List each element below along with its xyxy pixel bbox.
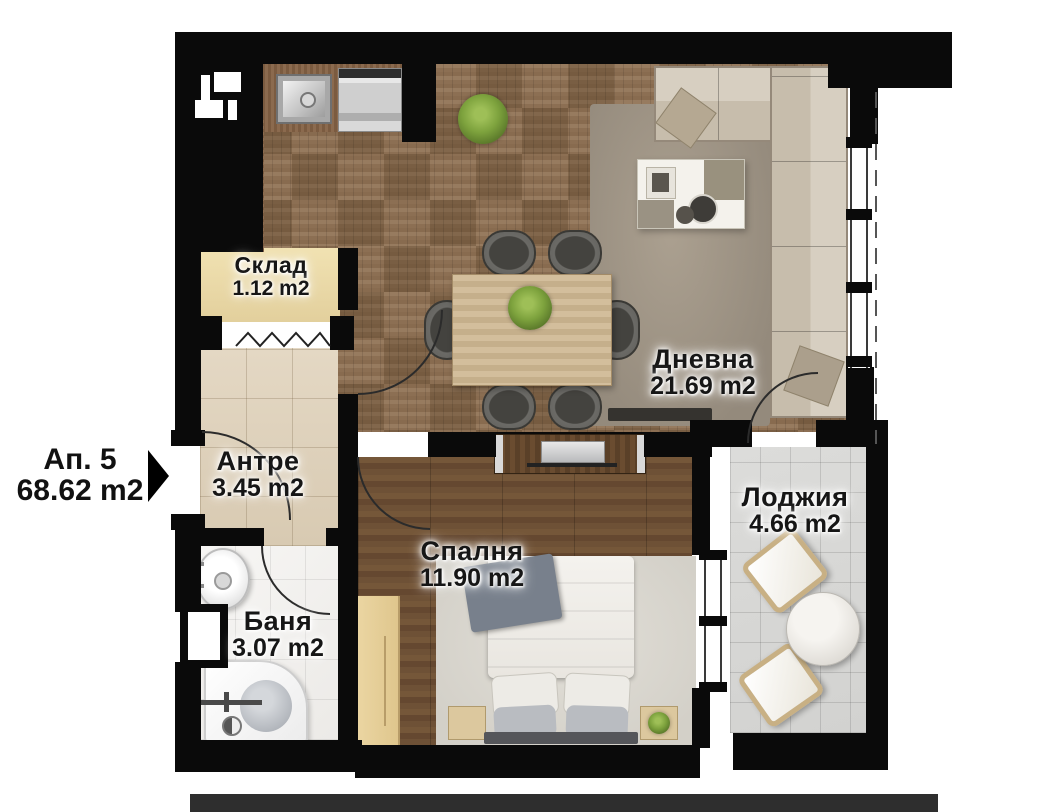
storage-door-jamb-left bbox=[200, 316, 222, 350]
room-area: 21.69 m2 bbox=[618, 373, 788, 399]
room-name: Баня bbox=[208, 608, 348, 635]
window-frame bbox=[850, 142, 852, 368]
wall-left-upper bbox=[175, 252, 201, 444]
plant-icon bbox=[458, 94, 508, 144]
wardrobe bbox=[354, 596, 400, 746]
window-mullion bbox=[846, 209, 872, 220]
vent-shaft bbox=[228, 100, 237, 120]
floor-plan: Склад 1.12 m2 Дневна 21.69 m2 Антре 3.45… bbox=[0, 0, 1056, 812]
wall-top-right-corner bbox=[828, 32, 952, 88]
room-label-bathroom: Баня 3.07 m2 bbox=[208, 608, 348, 661]
wall-shaft-block bbox=[175, 62, 263, 252]
nightstand-plant-icon bbox=[648, 712, 670, 734]
wall-bedroom-top-mid bbox=[428, 432, 496, 457]
wall-bath-top-right bbox=[326, 528, 358, 546]
room-name: Спалня bbox=[392, 538, 552, 565]
apartment-area: 68.62 m2 bbox=[6, 475, 154, 506]
kitchen-sink bbox=[276, 74, 332, 124]
storage-door-jamb-right bbox=[330, 316, 354, 350]
dining-chair bbox=[482, 230, 536, 276]
wall-bottom-bath bbox=[175, 740, 362, 772]
dining-chair bbox=[548, 384, 602, 430]
wall-loggia-top-left bbox=[690, 420, 752, 447]
nightstand-left bbox=[448, 706, 486, 740]
room-name: Антре bbox=[188, 448, 328, 475]
window-mullion bbox=[846, 282, 872, 293]
dishwasher bbox=[338, 68, 402, 132]
wall-right-stub bbox=[850, 88, 878, 144]
shower-drain-icon bbox=[222, 716, 242, 736]
shower bbox=[204, 660, 308, 744]
room-area: 1.12 m2 bbox=[206, 277, 336, 300]
bottom-structure-strip bbox=[190, 794, 938, 812]
shower-pipe-icon bbox=[224, 692, 229, 712]
room-area: 11.90 m2 bbox=[392, 565, 552, 591]
window-mullion bbox=[846, 137, 872, 148]
room-label-loggia: Лоджия 4.66 m2 bbox=[725, 484, 865, 537]
wall-bedroom-right-upper bbox=[692, 457, 710, 555]
photo-frame bbox=[646, 167, 676, 199]
coffee-table bbox=[637, 159, 745, 229]
wall-kitchen-stub bbox=[402, 62, 436, 142]
window-mullion bbox=[699, 616, 727, 626]
room-name: Лоджия bbox=[725, 484, 865, 511]
apartment-label: Ап. 5 68.62 m2 bbox=[6, 444, 154, 506]
decor-tray-icon bbox=[676, 206, 694, 224]
entrance-arrow-icon bbox=[148, 450, 169, 502]
dining-chair bbox=[548, 230, 602, 276]
wall-top bbox=[175, 32, 852, 64]
photo bbox=[652, 173, 669, 192]
wall-under-window bbox=[846, 367, 874, 425]
wall-loggia-right bbox=[866, 420, 888, 736]
wall-bottom-bedroom bbox=[355, 745, 700, 778]
bedroom-tv-unit bbox=[494, 434, 646, 474]
entrance-jamb-top bbox=[171, 430, 205, 446]
wall-hall-bedroom bbox=[338, 394, 358, 745]
wall-hall-upper bbox=[338, 248, 358, 310]
window-mullion bbox=[846, 356, 872, 367]
room-label-hallway: Антре 3.45 m2 bbox=[188, 448, 328, 501]
window-mullion bbox=[699, 682, 727, 692]
loggia-round-table bbox=[786, 592, 860, 666]
wall-bedroom-right-lower bbox=[692, 688, 710, 748]
sink-drain bbox=[300, 92, 316, 108]
wardrobe-door-line bbox=[384, 636, 386, 726]
room-area: 3.45 m2 bbox=[188, 475, 328, 501]
table-plant-icon bbox=[508, 286, 552, 330]
room-label-living: Дневна 21.69 m2 bbox=[618, 346, 788, 399]
wall-bath-top-left bbox=[200, 528, 264, 546]
room-label-storage: Склад 1.12 m2 bbox=[206, 254, 336, 300]
vent-shaft bbox=[201, 75, 210, 103]
wall-loggia-bottom bbox=[733, 733, 888, 770]
dining-chair bbox=[482, 384, 536, 430]
soundbar bbox=[527, 463, 617, 467]
tv-screen bbox=[541, 441, 605, 463]
vent-shaft bbox=[214, 72, 241, 92]
shower-pipe-icon bbox=[200, 700, 262, 705]
coffee-table-tray bbox=[704, 160, 744, 200]
vent-shaft bbox=[195, 100, 223, 118]
wall-left-mid bbox=[175, 516, 201, 612]
room-name: Дневна bbox=[618, 346, 788, 373]
room-area: 4.66 m2 bbox=[725, 511, 865, 537]
apartment-name: Ап. 5 bbox=[6, 444, 154, 475]
window-frame bbox=[866, 142, 868, 368]
tv-unit-side bbox=[495, 435, 503, 473]
basin-drain bbox=[214, 572, 232, 590]
washbasin bbox=[196, 548, 250, 610]
room-area: 3.07 m2 bbox=[208, 635, 348, 661]
room-name: Склад bbox=[206, 254, 336, 277]
window-mullion bbox=[699, 550, 727, 560]
coffee-table-tray bbox=[638, 200, 674, 228]
shower-head-icon bbox=[240, 680, 292, 732]
room-label-bedroom: Спалня 11.90 m2 bbox=[392, 538, 552, 591]
headboard bbox=[484, 732, 638, 744]
